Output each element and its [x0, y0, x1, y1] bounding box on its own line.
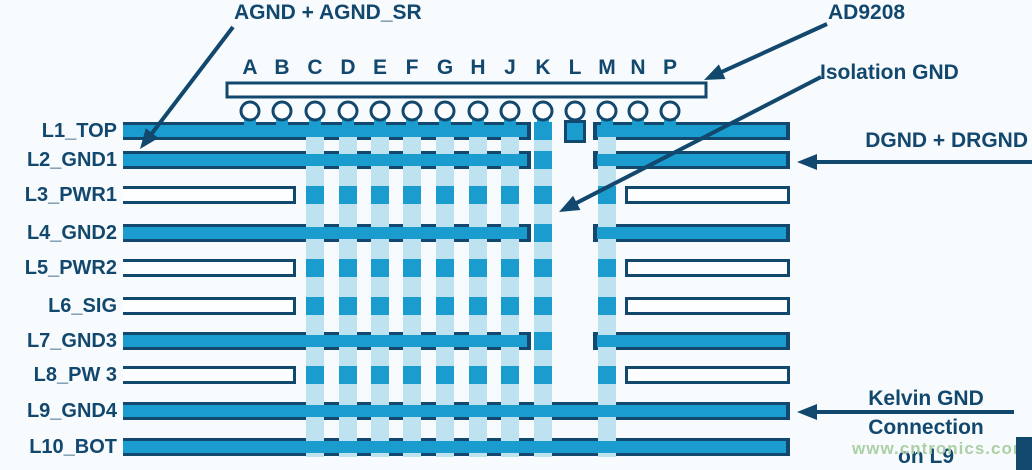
ball — [273, 102, 291, 120]
ball — [371, 102, 389, 120]
via-stripe — [501, 417, 519, 441]
annotation-chip: AD9208 — [828, 1, 905, 25]
agnd-arrow-line — [148, 27, 233, 138]
via-pad — [469, 259, 487, 277]
via-pad — [339, 186, 357, 204]
layer-bar-fill — [123, 154, 527, 166]
via-pad — [436, 186, 454, 204]
layer-bar-fill — [123, 405, 786, 417]
via-stripe — [534, 140, 552, 151]
via-stripe — [306, 239, 324, 259]
via-pad — [501, 259, 519, 277]
via-stripe — [403, 315, 421, 335]
via-pad — [371, 186, 389, 204]
via-stripe — [306, 315, 324, 335]
via-stripe-tip — [436, 453, 454, 457]
ball — [501, 102, 519, 120]
via-stripe — [371, 239, 389, 259]
via-stripe — [501, 137, 519, 154]
column-letter-g: G — [432, 56, 458, 80]
ball — [469, 102, 487, 120]
via-stripe — [501, 166, 519, 186]
via-stripe — [403, 137, 421, 154]
via-stripe — [306, 384, 324, 405]
annotation-isolation: Isolation GND — [820, 61, 959, 85]
via-stripe — [371, 315, 389, 335]
column-letter-m: M — [594, 56, 620, 80]
via-stripe — [598, 384, 616, 405]
via-pad — [534, 297, 552, 315]
via-stripe — [534, 315, 552, 332]
via-stripe — [306, 137, 324, 154]
via-stripe — [501, 204, 519, 227]
via-pad — [501, 366, 519, 384]
via-stripe — [436, 315, 454, 335]
layer-bar-fill — [123, 227, 527, 239]
via-stripe — [403, 417, 421, 441]
ball — [306, 102, 324, 120]
via-stripe — [534, 350, 552, 366]
via-stripe — [403, 347, 421, 366]
via-pad — [403, 259, 421, 277]
layer-label-l2: L2_GND1 — [0, 149, 117, 172]
via-stripe — [469, 137, 487, 154]
via-stripe — [339, 315, 357, 335]
via-pad — [403, 186, 421, 204]
layer-bar-fill — [597, 125, 786, 137]
via-stripe — [501, 277, 519, 297]
layer-outline-fill — [628, 262, 787, 274]
via-stripe-tip — [469, 453, 487, 457]
via-pad — [534, 332, 552, 350]
ball — [661, 102, 679, 120]
column-letter-j: J — [497, 56, 523, 80]
via-stripe — [436, 347, 454, 366]
ball — [436, 102, 454, 120]
via-stripe — [339, 204, 357, 227]
via-stripe — [598, 137, 616, 154]
corner-block — [1016, 437, 1032, 470]
via-stripe — [371, 277, 389, 297]
via-stripe — [469, 347, 487, 366]
via-stripe — [371, 384, 389, 405]
column-letter-n: N — [625, 56, 651, 80]
column-letter-k: K — [530, 56, 556, 80]
via-stripe — [436, 417, 454, 441]
via-stripe — [306, 277, 324, 297]
via-pad — [436, 259, 454, 277]
ball — [241, 102, 259, 120]
chip-body — [227, 83, 706, 97]
via-pad — [306, 186, 324, 204]
layer-label-l4: L4_GND2 — [0, 222, 117, 245]
via-stripe-tip — [403, 453, 421, 457]
via-stripe — [534, 277, 552, 297]
ball — [403, 102, 421, 120]
via-stripe — [534, 169, 552, 186]
via-stripe-tip — [339, 453, 357, 457]
via-pad — [339, 259, 357, 277]
via-stripe — [469, 384, 487, 405]
via-stripe — [469, 417, 487, 441]
via-stripe — [598, 417, 616, 441]
via-pad — [306, 259, 324, 277]
via-pad — [403, 297, 421, 315]
via-pad — [598, 366, 616, 384]
via-stripe — [339, 137, 357, 154]
layer-label-l8: L8_PW 3 — [0, 364, 117, 387]
via-stripe — [371, 137, 389, 154]
layer-bar-fill — [597, 154, 786, 166]
via-stripe — [403, 166, 421, 186]
layer-bar-fill — [597, 227, 786, 239]
via-stripe — [403, 204, 421, 227]
layer-label-l10: L10_BOT — [0, 436, 117, 459]
ball — [534, 102, 552, 120]
chip-arrow-head — [704, 64, 726, 80]
via-stripe — [436, 137, 454, 154]
layer-outline-fill — [628, 300, 787, 312]
via-pad — [598, 297, 616, 315]
via-pad — [501, 186, 519, 204]
column-letter-e: E — [367, 56, 393, 80]
via-pad — [436, 366, 454, 384]
via-pad — [534, 151, 552, 169]
via-stripe — [339, 277, 357, 297]
isolated-pad-fill — [567, 123, 583, 140]
layer-bar-fill — [123, 125, 527, 137]
via-pad — [469, 366, 487, 384]
via-stripe — [306, 166, 324, 186]
layer-outline-fill — [123, 300, 293, 312]
via-stripe-tip — [371, 453, 389, 457]
column-letter-f: F — [399, 56, 425, 80]
via-stripe — [598, 277, 616, 297]
via-pad — [371, 297, 389, 315]
via-pad — [534, 186, 552, 204]
via-pad — [339, 366, 357, 384]
chip-arrow-line — [717, 24, 827, 74]
layer-label-l6: L6_SIG — [0, 295, 117, 318]
layer-bar-fill — [123, 441, 786, 453]
via-stripe — [598, 347, 616, 366]
layer-bar-fill — [123, 335, 527, 347]
layer-label-l9: L9_GND4 — [0, 400, 117, 423]
column-letter-p: P — [657, 56, 683, 80]
via-pad — [534, 259, 552, 277]
pcb-stackup-diagram: L1_TOP L2_GND1 L3_PWR1 L4_GND2 L5_PWR2 L… — [0, 0, 1032, 470]
via-pad — [598, 259, 616, 277]
via-stripe — [339, 417, 357, 441]
via-stripe — [371, 204, 389, 227]
layer-outline-fill — [628, 369, 787, 381]
via-stripe — [306, 204, 324, 227]
layer-outline-fill — [123, 189, 293, 201]
via-stripe — [534, 384, 552, 405]
via-stripe — [339, 347, 357, 366]
via-pad — [534, 366, 552, 384]
via-stripe — [469, 315, 487, 335]
layer-label-l7: L7_GND3 — [0, 330, 117, 353]
via-stripe — [469, 239, 487, 259]
column-letter-h: H — [465, 56, 491, 80]
via-stripe — [339, 166, 357, 186]
via-stripe — [598, 315, 616, 335]
layer-outline-fill — [123, 369, 293, 381]
annotation-dgnd: DGND + DRGND — [838, 129, 1028, 153]
annotation-kelvin-line1: Kelvin GND — [843, 384, 1009, 413]
via-stripe — [436, 277, 454, 297]
layer-label-l1: L1_TOP — [0, 120, 117, 143]
layer-label-l5: L5_PWR2 — [0, 257, 117, 280]
via-stripe — [469, 277, 487, 297]
via-stripe-tip — [534, 453, 552, 457]
via-pad — [403, 366, 421, 384]
via-pad — [371, 259, 389, 277]
via-stripe — [501, 347, 519, 366]
via-stripe — [534, 242, 552, 259]
column-letter-d: D — [335, 56, 361, 80]
column-letter-b: B — [269, 56, 295, 80]
via-pad — [306, 297, 324, 315]
via-stripe — [436, 204, 454, 227]
via-pad — [501, 297, 519, 315]
via-stripe — [339, 239, 357, 259]
via-pad — [436, 297, 454, 315]
via-stripe — [469, 204, 487, 227]
via-pad — [534, 224, 552, 242]
via-pad — [371, 366, 389, 384]
via-stripe-tip — [501, 453, 519, 457]
layer-label-l3: L3_PWR1 — [0, 184, 117, 207]
via-stripe — [403, 384, 421, 405]
ball — [566, 102, 584, 120]
via-stripe — [371, 166, 389, 186]
via-stripe — [501, 384, 519, 405]
via-stripe — [403, 239, 421, 259]
via-stripe — [339, 384, 357, 405]
via-stripe — [371, 347, 389, 366]
ball — [598, 102, 616, 120]
watermark: www.cntronics.com — [852, 439, 1029, 459]
via-stripe — [469, 166, 487, 186]
ball — [339, 102, 357, 120]
annotation-agnd: AGND + AGND_SR — [234, 1, 422, 25]
via-pad — [306, 366, 324, 384]
annotation-kelvin-line2: Connection — [843, 413, 1009, 442]
via-stripe — [306, 347, 324, 366]
via-pad — [339, 297, 357, 315]
layer-bar-fill — [597, 335, 786, 347]
dgnd-arrow-head — [797, 154, 817, 170]
via-stripe — [501, 315, 519, 335]
kelvin-arrow-head — [797, 404, 817, 420]
via-stripe — [501, 239, 519, 259]
via-stripe — [403, 277, 421, 297]
layer-outline-fill — [123, 262, 293, 274]
via-stripe — [436, 239, 454, 259]
column-letter-l: L — [562, 56, 588, 80]
via-stripe — [534, 204, 552, 224]
via-stripe-tip — [306, 453, 324, 457]
column-letter-c: C — [302, 56, 328, 80]
via-stripe — [598, 239, 616, 259]
via-stripe — [306, 417, 324, 441]
via-pad — [469, 186, 487, 204]
isolation-arrow-head — [559, 196, 580, 212]
via-stripe — [371, 417, 389, 441]
via-stripe-tip — [598, 453, 616, 457]
column-letter-a: A — [237, 56, 263, 80]
via-stripe — [598, 204, 616, 227]
via-stripe — [436, 166, 454, 186]
layer-outline-fill — [628, 189, 787, 201]
via-stripe — [534, 417, 552, 441]
via-stripe — [436, 384, 454, 405]
ball — [629, 102, 647, 120]
via-pad — [469, 297, 487, 315]
